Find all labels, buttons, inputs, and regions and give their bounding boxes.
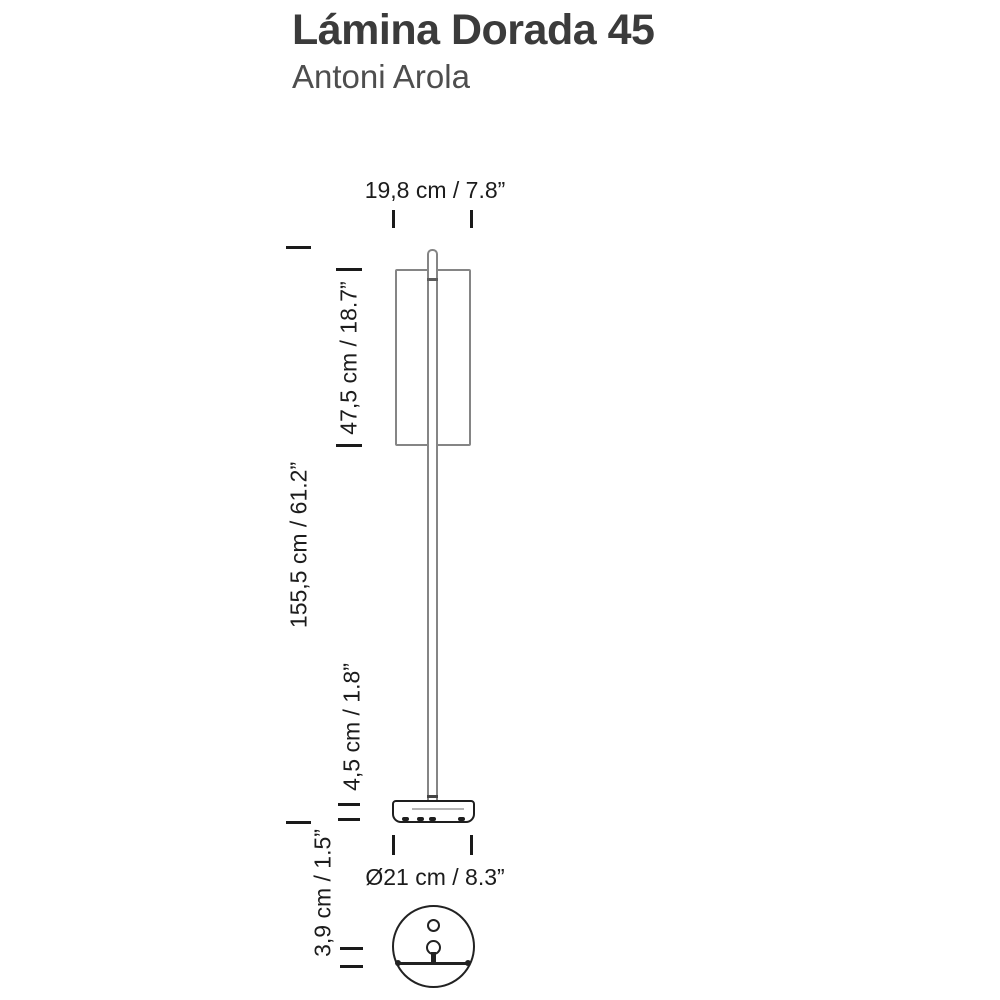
spec-sheet: Lámina Dorada 45 Antoni Arola 19,8 cm / …: [0, 0, 1000, 1000]
dim-label-base-diameter: Ø21 cm / 8.3”: [365, 864, 504, 891]
top-hole-mark: [427, 919, 440, 932]
base-foot-mark: [402, 817, 409, 821]
dim-label-shade-width: 19,8 cm / 7.8”: [365, 177, 506, 204]
dim-label-base-height: 3,9 cm / 1.5”: [310, 829, 337, 957]
dim-tick: [470, 210, 473, 228]
base-inner-line: [412, 808, 464, 810]
dim-label-total-height: 155,5 cm / 61.2”: [286, 462, 313, 628]
dim-tick: [338, 803, 360, 806]
base-foot-mark: [429, 817, 436, 821]
dim-tick: [286, 246, 311, 249]
dim-tick: [392, 210, 395, 228]
designer-name: Antoni Arola: [292, 58, 470, 96]
stem-outline: [427, 249, 438, 802]
dim-tick: [338, 818, 360, 821]
dim-tick: [336, 444, 362, 447]
base-foot-mark: [458, 817, 465, 821]
base-chord-line: [397, 962, 469, 965]
dim-tick: [340, 947, 363, 950]
dim-tick: [340, 965, 363, 968]
dim-tick: [286, 821, 311, 824]
chord-end-dot: [395, 960, 401, 966]
dim-tick: [392, 835, 395, 855]
stem-joint-mark: [427, 278, 438, 281]
stem-socket-mark: [427, 795, 438, 798]
base-foot-mark: [417, 817, 424, 821]
dim-tick: [336, 268, 362, 271]
page-title: Lámina Dorada 45: [292, 6, 654, 55]
dim-label-shade-height: 47,5 cm / 18.7”: [336, 281, 363, 434]
dim-tick: [470, 835, 473, 855]
dim-label-stem-clearance: 4,5 cm / 1.8”: [339, 663, 366, 791]
chord-end-dot: [465, 960, 471, 966]
